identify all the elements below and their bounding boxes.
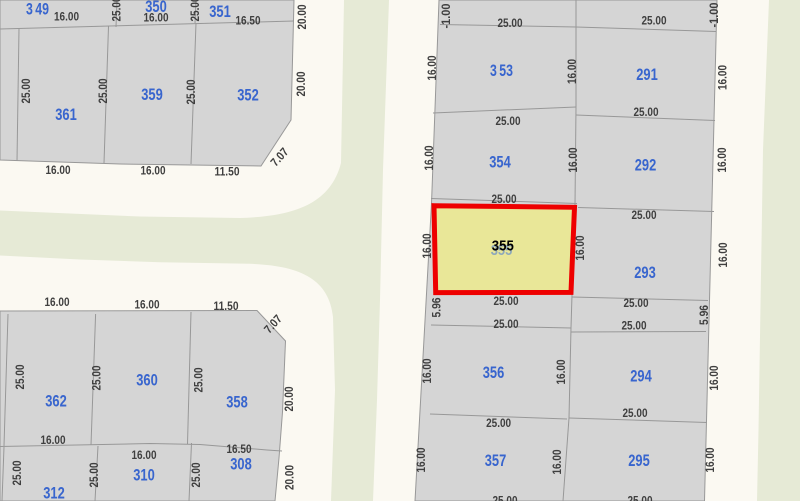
svg-text:25.00: 25.00 (632, 208, 657, 222)
svg-text:308: 308 (230, 455, 252, 473)
svg-text:25.00: 25.00 (624, 296, 649, 310)
svg-text:354: 354 (489, 153, 511, 171)
svg-text:25.00: 25.00 (184, 79, 198, 104)
svg-text:16.00: 16.00 (420, 358, 434, 383)
svg-text:16.00: 16.00 (550, 449, 564, 474)
svg-text:25.00: 25.00 (493, 494, 518, 501)
svg-text:25.00: 25.00 (10, 460, 24, 485)
svg-text:16.00: 16.00 (135, 298, 160, 312)
svg-text:25.00: 25.00 (494, 317, 519, 331)
svg-text:292: 292 (635, 156, 657, 174)
svg-text:16.50: 16.50 (236, 14, 261, 28)
svg-text:25.00: 25.00 (496, 114, 521, 128)
svg-text:11.50: 11.50 (215, 165, 240, 179)
svg-text:16.00: 16.00 (420, 233, 434, 258)
svg-text:16.00: 16.00 (566, 147, 580, 172)
svg-text:25.00: 25.00 (494, 294, 519, 308)
svg-text:25.00: 25.00 (623, 406, 648, 420)
svg-text:16.00: 16.00 (41, 433, 66, 447)
svg-text:25.00: 25.00 (19, 78, 33, 103)
svg-text:361: 361 (55, 106, 77, 124)
svg-text:16.00: 16.00 (414, 447, 428, 472)
svg-text:25.00: 25.00 (498, 16, 523, 30)
svg-text:16.00: 16.00 (716, 65, 730, 90)
svg-text:357: 357 (485, 452, 507, 470)
svg-text:294: 294 (630, 367, 652, 385)
svg-text:16.00: 16.00 (132, 448, 157, 462)
svg-text:351: 351 (209, 3, 231, 21)
svg-text:25.00: 25.00 (90, 365, 104, 390)
svg-text:5.96: 5.96 (697, 305, 711, 325)
svg-text:3 53: 3 53 (490, 62, 513, 80)
svg-text:16.00: 16.00 (45, 295, 70, 309)
svg-text:25.00: 25.00 (492, 192, 517, 206)
svg-text:16.00: 16.00 (554, 359, 568, 384)
svg-text:25.00: 25.00 (189, 462, 203, 487)
svg-text:20.00: 20.00 (294, 71, 308, 96)
svg-text:25.00: 25.00 (96, 78, 110, 103)
svg-text:16.00: 16.00 (144, 11, 169, 25)
svg-text:360: 360 (136, 371, 158, 389)
svg-text:16.00: 16.00 (425, 55, 439, 80)
svg-text:291: 291 (636, 66, 658, 84)
svg-text:16.00: 16.00 (141, 164, 166, 178)
svg-text:-1.00: -1.00 (439, 3, 453, 28)
svg-text:25.00: 25.00 (634, 105, 659, 119)
svg-text:16.00: 16.00 (703, 447, 717, 472)
svg-text:25.00: 25.00 (192, 367, 206, 392)
svg-text:20.00: 20.00 (295, 4, 309, 29)
svg-text:3 49: 3 49 (26, 0, 49, 18)
svg-text:16.00: 16.00 (565, 59, 579, 84)
svg-text:312: 312 (43, 484, 65, 501)
svg-text:293: 293 (634, 264, 656, 282)
svg-text:356: 356 (483, 364, 505, 382)
svg-text:16.00: 16.00 (716, 242, 730, 267)
svg-text:310: 310 (133, 466, 155, 484)
svg-text:20.00: 20.00 (283, 465, 297, 490)
svg-text:16.50: 16.50 (227, 442, 252, 456)
svg-text:359: 359 (141, 86, 163, 104)
svg-text:-1.00: -1.00 (707, 2, 721, 27)
svg-text:352: 352 (237, 86, 259, 104)
svg-text:358: 358 (226, 393, 248, 411)
svg-text:25.00: 25.00 (642, 14, 667, 28)
svg-text:16.00: 16.00 (715, 147, 729, 172)
svg-text:25.00: 25.00 (110, 0, 124, 22)
svg-text:362: 362 (45, 392, 67, 410)
svg-text:25.00: 25.00 (188, 0, 202, 22)
svg-text:16.00: 16.00 (46, 163, 71, 177)
svg-text:16.00: 16.00 (707, 365, 721, 390)
svg-text:5.96: 5.96 (430, 297, 444, 317)
svg-text:11.50: 11.50 (214, 299, 239, 313)
svg-text:16.00: 16.00 (422, 145, 436, 170)
svg-text:25.00: 25.00 (628, 494, 653, 501)
svg-text:25.00: 25.00 (87, 462, 101, 487)
svg-text:20.00: 20.00 (282, 386, 296, 411)
svg-text:16.00: 16.00 (573, 235, 587, 260)
svg-text:25.00: 25.00 (486, 416, 511, 430)
svg-text:25.00: 25.00 (13, 364, 27, 389)
svg-text:16.00: 16.00 (54, 10, 79, 24)
svg-text:25.00: 25.00 (622, 319, 647, 333)
svg-text:355: 355 (492, 238, 514, 254)
svg-text:295: 295 (628, 452, 650, 470)
